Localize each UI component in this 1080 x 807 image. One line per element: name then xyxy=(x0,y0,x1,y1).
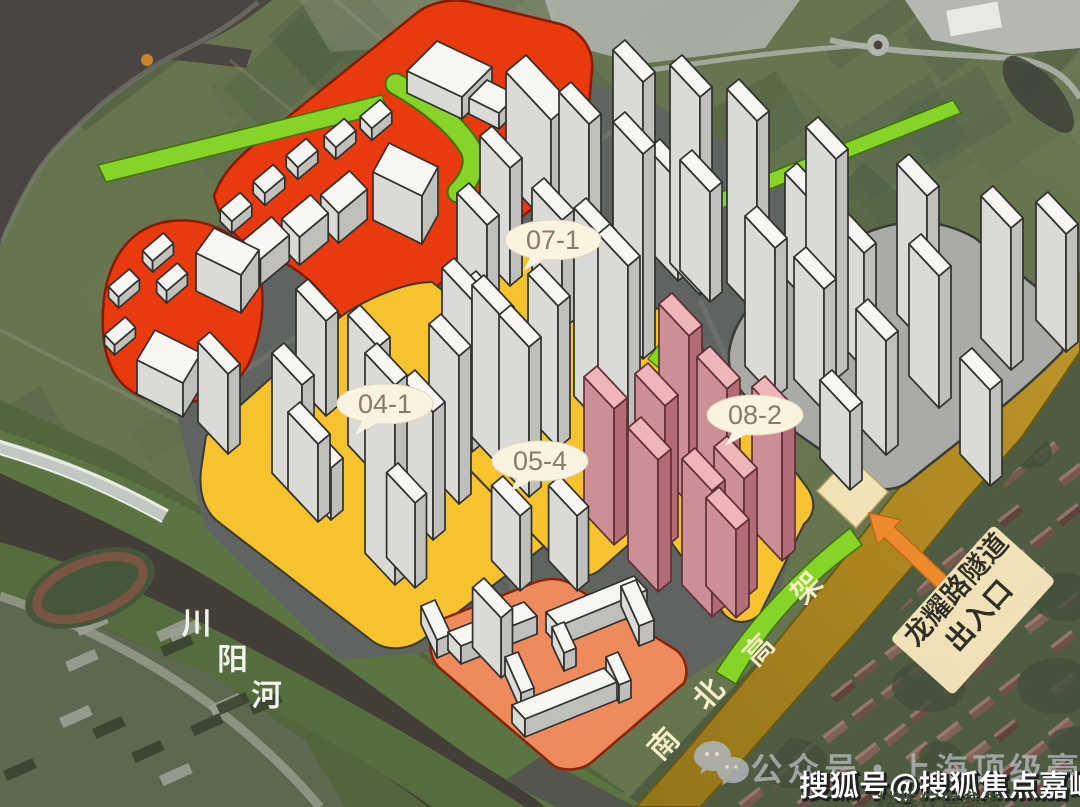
svg-text:08-2: 08-2 xyxy=(728,400,782,430)
svg-text:05-4: 05-4 xyxy=(513,446,567,476)
svg-text:07-1: 07-1 xyxy=(526,225,580,255)
svg-text:04-1: 04-1 xyxy=(358,389,412,419)
